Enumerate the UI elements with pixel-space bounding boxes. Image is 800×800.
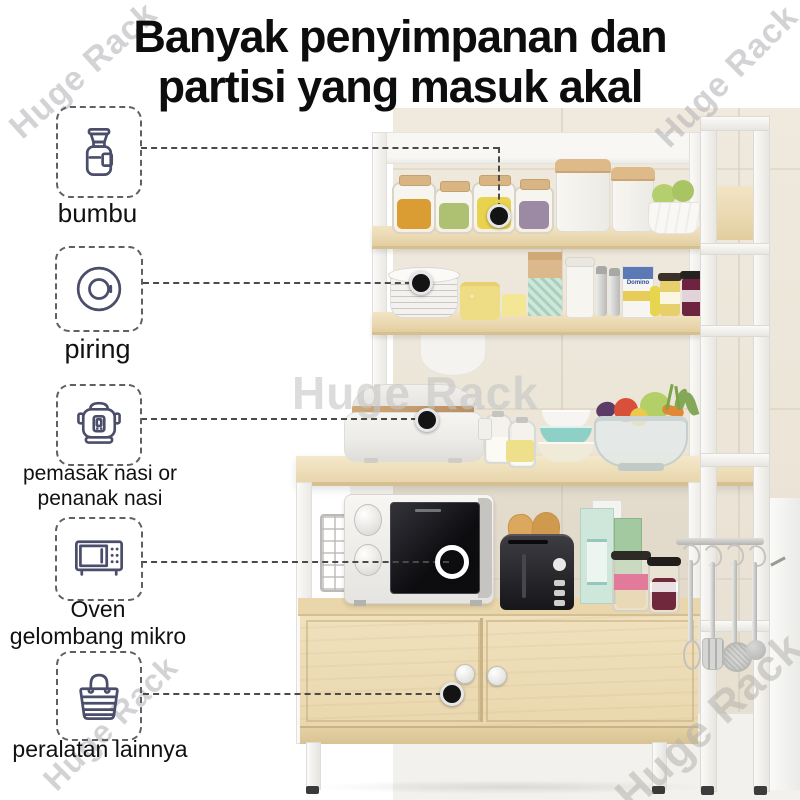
microwave-icon <box>70 530 128 588</box>
callout-label-line: Oven <box>0 596 196 623</box>
canister-lid <box>611 167 655 181</box>
cabinet-door-right <box>486 620 694 722</box>
spice-jar-green <box>434 188 474 234</box>
callout-box-rice-cooker <box>56 384 142 466</box>
connector-dot-bumbu <box>487 204 511 228</box>
pepper-grinder <box>596 266 607 316</box>
condiment-tube <box>650 286 660 316</box>
white-canister-large <box>556 168 610 232</box>
spatula <box>702 638 724 670</box>
ladder-rung <box>700 453 770 467</box>
connector-line-piring <box>143 282 421 284</box>
jam-jar-yellow <box>660 280 680 316</box>
utensil-handle <box>710 562 715 640</box>
callout-box-microwave <box>55 517 143 601</box>
connector-dot-other <box>440 682 464 706</box>
callout-box-bumbu <box>56 106 142 198</box>
box-label: Domino <box>623 280 653 286</box>
jar-label <box>660 292 680 304</box>
rack-leg <box>652 742 667 790</box>
white-jar <box>566 262 594 318</box>
callout-label-line: penanak nasi <box>5 487 195 512</box>
microwave-knob <box>354 544 382 576</box>
fruit-bowl <box>648 202 700 234</box>
yellow-tumbler <box>506 440 534 462</box>
cabinet-knob-left <box>455 664 475 684</box>
salt-grinder <box>609 268 620 316</box>
connector-line-bumbu <box>141 147 499 149</box>
utensil-handle <box>752 562 757 642</box>
toaster-button <box>554 590 565 596</box>
spice-jar-icon <box>70 123 128 181</box>
jar-lid <box>611 551 651 560</box>
rack-leg <box>306 742 321 790</box>
jar-label <box>614 574 648 590</box>
canister-lid <box>555 159 611 173</box>
toaster-button <box>554 600 565 606</box>
cabinet-bottom-rail <box>300 726 698 744</box>
rice-cooker-icon <box>71 397 127 453</box>
jar-lid <box>647 557 681 566</box>
bottle-cap <box>516 417 528 423</box>
ladder-rung <box>700 325 770 337</box>
microwave-door <box>390 502 480 594</box>
microwave-foot <box>354 600 366 606</box>
grinder-cap <box>596 266 607 274</box>
bowl-base <box>618 463 664 471</box>
jar-contents <box>439 203 469 229</box>
headline: Banyak penyimpanan dan partisi yang masu… <box>0 12 800 111</box>
microwave-brand-mark <box>415 509 441 512</box>
kraft-paper-bag <box>528 252 562 316</box>
toaster-lever <box>522 554 526 598</box>
headline-line2: partisi yang masuk akal <box>0 62 800 112</box>
ladder-rung <box>700 116 770 131</box>
jar-lid <box>658 273 682 281</box>
shopping-bag-icon <box>70 667 128 725</box>
toaster-slot <box>508 540 548 544</box>
promo-image: Domino <box>0 0 800 800</box>
callout-label-piring: piring <box>20 334 175 366</box>
whisk <box>683 640 701 670</box>
floor-shadow <box>310 780 710 794</box>
sauce-jar-red <box>648 562 680 614</box>
callout-label-rice-cooker: pemasak nasi or penanak nasi <box>5 462 195 512</box>
yellow-canister <box>460 282 500 320</box>
callout-box-piring <box>55 246 143 332</box>
vegetable-bowl <box>594 416 688 467</box>
plate-icon <box>70 260 128 318</box>
rice-cooker-foot <box>364 458 378 463</box>
cabinet-knob-right <box>487 666 507 686</box>
microwave-knob <box>354 504 382 536</box>
connector-line-microwave <box>141 561 449 563</box>
callout-label-line: pemasak nasi or <box>5 462 195 487</box>
cabinet-door-left <box>306 620 480 722</box>
callout-label-bumbu: bumbu <box>20 198 175 229</box>
bag-label <box>528 278 562 316</box>
jar-lid <box>520 179 549 190</box>
callout-label-other: peralatan lainnya <box>2 736 198 763</box>
microwave-side <box>478 498 492 598</box>
microwave-foot <box>470 600 482 606</box>
rack-foot <box>652 786 665 794</box>
refrigerator-handle <box>770 556 786 566</box>
rice-cooker-handle <box>478 418 492 440</box>
sauce-jar-pink-label <box>612 556 650 612</box>
shelf-bracket <box>420 332 486 376</box>
toaster-button <box>554 580 565 586</box>
jar-lid <box>479 175 511 186</box>
jar-lid <box>440 181 469 192</box>
box-band <box>623 267 653 279</box>
box-band <box>623 291 653 301</box>
utensil-handle <box>732 560 737 644</box>
spice-jar-amber <box>392 182 436 234</box>
spice-jar-purple <box>514 186 554 234</box>
ladder-foot <box>701 786 714 795</box>
bottle-cap <box>492 411 504 417</box>
callout-label-line: gelombang mikro <box>0 623 196 650</box>
headline-line1: Banyak penyimpanan dan <box>0 12 800 62</box>
green-apple <box>672 180 694 202</box>
package-label <box>587 539 607 585</box>
jar-label <box>650 582 678 592</box>
jar-contents <box>519 201 549 229</box>
ladle <box>746 640 766 660</box>
teal-package <box>580 508 614 604</box>
bag-fold <box>528 252 562 260</box>
rice-cooker-foot <box>448 458 462 463</box>
connector-dot-piring <box>409 271 433 295</box>
jar-contents <box>397 199 431 229</box>
rack-foot <box>306 786 319 794</box>
ladder-foot <box>754 786 767 795</box>
jar-lid <box>399 175 431 186</box>
cabinet-door-divider <box>480 618 483 722</box>
grinder-cap <box>609 268 620 276</box>
connector-ring-microwave <box>435 545 469 579</box>
connector-line-other <box>143 693 452 695</box>
toaster-knob <box>553 558 566 571</box>
connector-line-rice-cooker <box>141 418 427 420</box>
yellow-cup <box>502 294 526 316</box>
toaster <box>500 534 574 610</box>
callout-label-microwave: Oven gelombang mikro <box>0 596 196 650</box>
connector-line-bumbu-drop <box>498 147 500 209</box>
utensil-handle <box>688 560 693 642</box>
connector-dot-rice-cooker <box>415 408 439 432</box>
jar-lid <box>565 257 595 267</box>
callout-box-other <box>56 651 142 741</box>
ladder-rung <box>700 243 770 255</box>
